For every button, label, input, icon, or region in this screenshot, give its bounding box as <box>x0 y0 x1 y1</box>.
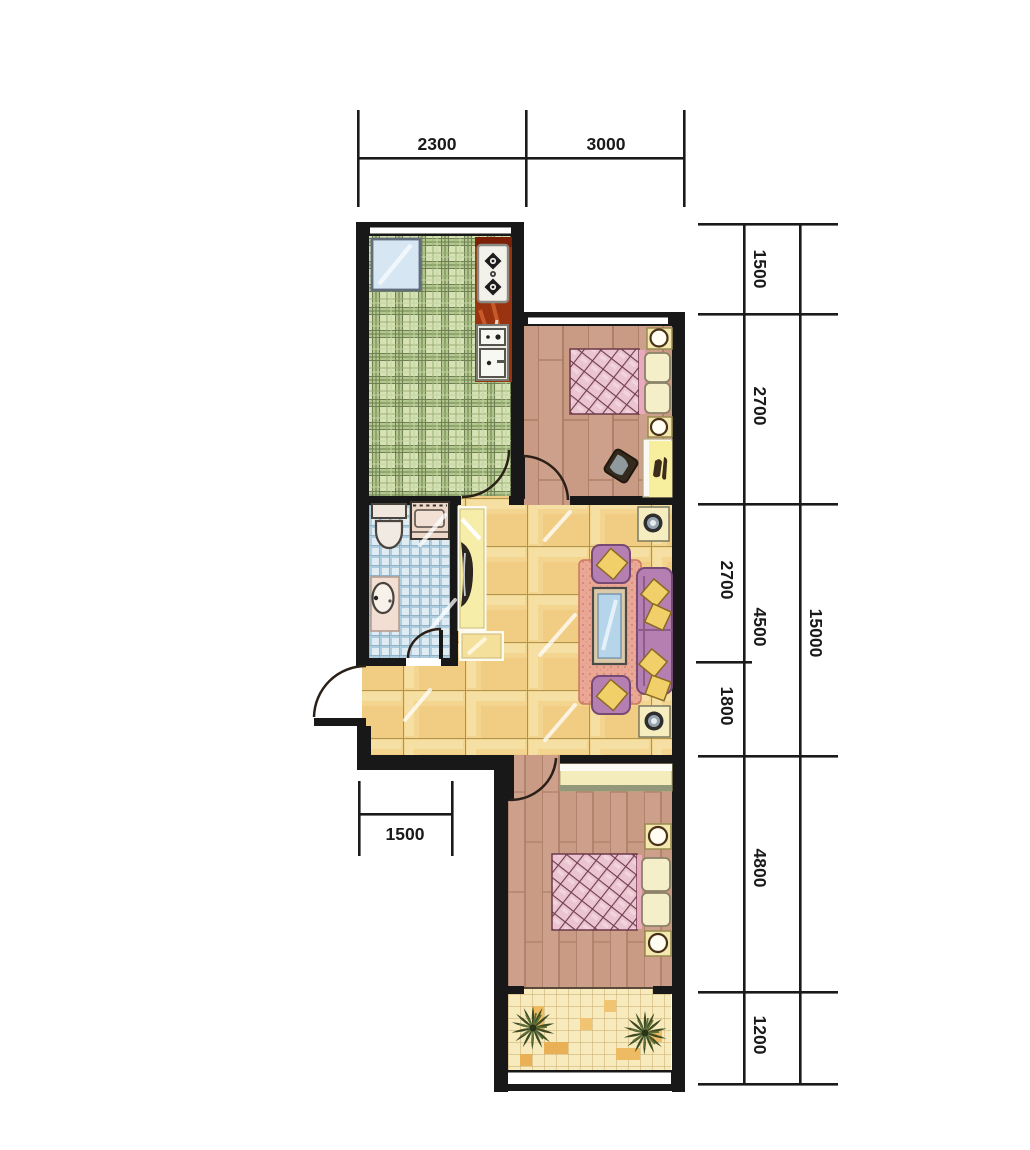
svg-text:2300: 2300 <box>418 134 457 154</box>
svg-text:1800: 1800 <box>717 687 737 726</box>
svg-text:4800: 4800 <box>750 849 770 888</box>
svg-text:4500: 4500 <box>750 608 770 647</box>
svg-text:2700: 2700 <box>750 387 770 426</box>
svg-text:1500: 1500 <box>386 824 425 844</box>
svg-text:1500: 1500 <box>750 250 770 289</box>
svg-text:1200: 1200 <box>750 1016 770 1055</box>
svg-text:2700: 2700 <box>717 561 737 600</box>
svg-text:15000: 15000 <box>806 609 826 658</box>
svg-text:3000: 3000 <box>587 134 626 154</box>
